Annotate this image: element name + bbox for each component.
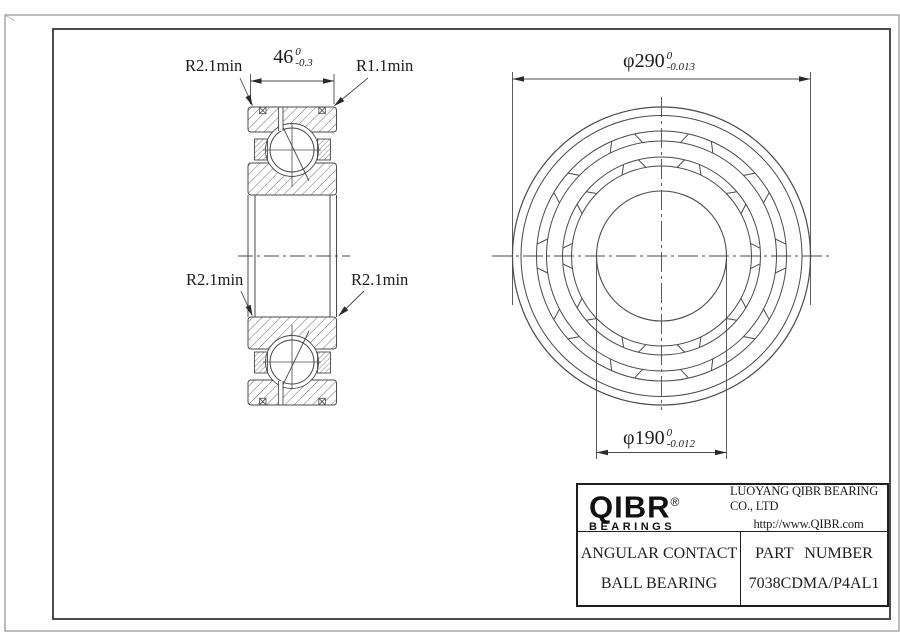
logo: QIBR® BEARINGS [578,485,730,531]
title-block-top-row: QIBR® BEARINGS LUOYANG QIBR BEARING CO.,… [578,485,887,532]
diameter-symbol: φ [623,50,635,72]
chamfer-label-mid-left: R2.1min [186,271,243,289]
bore-diameter-text: φ190 0 -0.012 [623,427,695,450]
lower-cage-right [318,352,331,373]
upper-cage-right [318,139,331,160]
width-dimension [251,74,335,104]
outer-diameter-text: φ290 0 -0.013 [623,50,695,73]
company-name: LUOYANG QIBR BEARING CO., LTD [730,484,887,514]
company-info: LUOYANG QIBR BEARING CO., LTD http://www… [730,485,887,531]
part-number-cell: PART NUMBER 7038CDMA/P4AL1 [740,532,887,605]
chamfer-label-mid-right: R2.1min [351,271,408,289]
title-block: QIBR® BEARINGS LUOYANG QIBR BEARING CO.,… [576,483,889,607]
id-tolerance: 0 -0.012 [667,428,695,450]
chamfer-label-top-right: R1.1min [356,57,413,75]
lower-cage-left [255,352,268,373]
part-number-label: PART NUMBER [755,545,873,563]
product-line1: ANGULAR CONTACT [581,545,738,563]
upper-cage-left [255,139,268,160]
section-view [238,107,350,405]
diameter-symbol: φ [623,427,635,449]
company-url: http://www.QIBR.com [754,517,864,532]
width-value: 46 [273,46,293,68]
product-line2: BALL BEARING [601,575,717,593]
drawing-page: 46 0 -0.3 φ290 0 -0.013 φ190 0 -0.012 R2… [0,0,900,636]
title-block-bottom-row: ANGULAR CONTACT BALL BEARING PART NUMBER… [578,532,887,605]
width-tolerance: 0 -0.3 [295,47,312,69]
width-dimension-text: 46 0 -0.3 [273,46,312,69]
od-tolerance: 0 -0.013 [667,51,695,73]
registered-trademark-icon: ® [671,495,680,509]
front-view [492,97,831,410]
product-description: ANGULAR CONTACT BALL BEARING [578,532,740,605]
logo-text: QIBR® [589,487,730,522]
part-number-value: 7038CDMA/P4AL1 [749,575,880,593]
chamfer-label-top-left: R2.1min [185,57,242,75]
